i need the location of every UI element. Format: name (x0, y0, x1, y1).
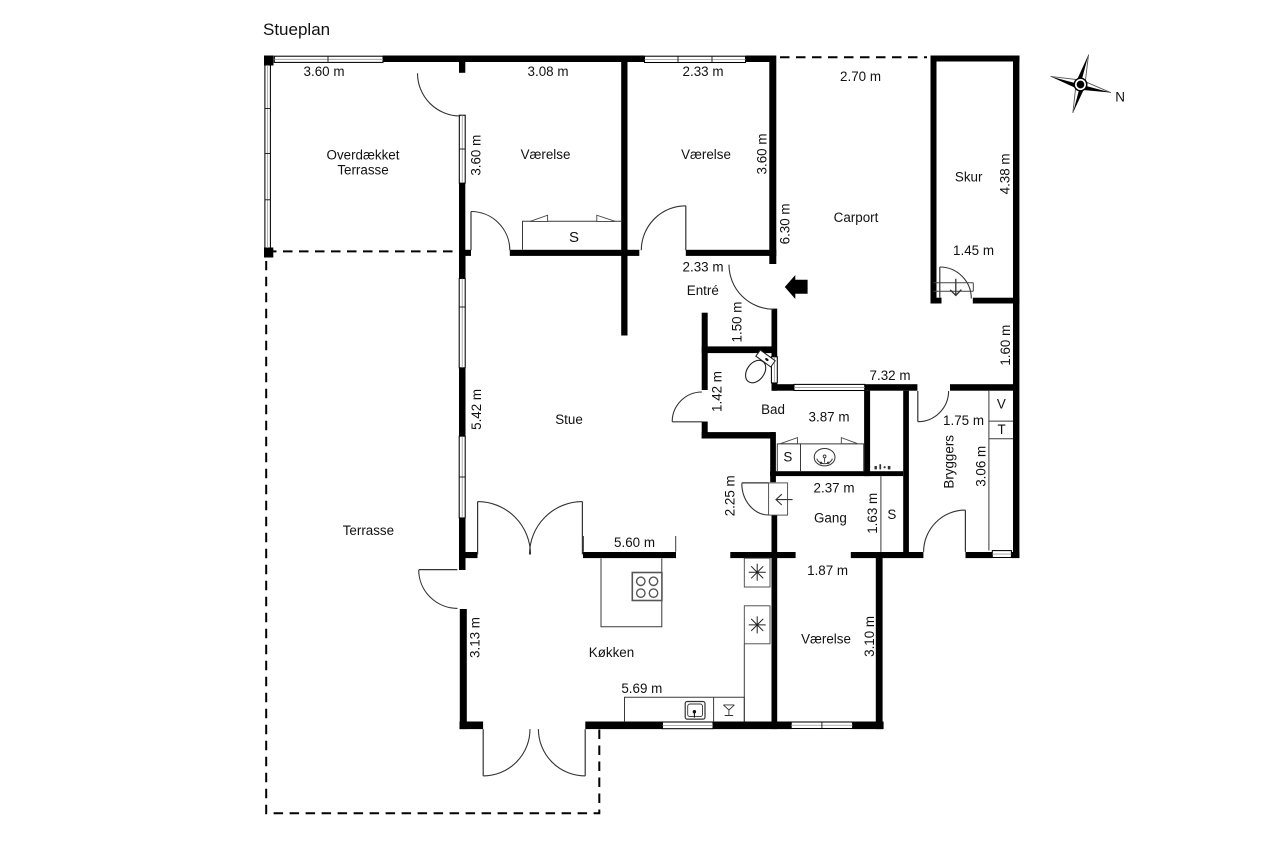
svg-text:S: S (887, 507, 896, 522)
svg-text:3.60 m: 3.60 m (469, 135, 484, 176)
svg-text:3.60 m: 3.60 m (304, 64, 345, 79)
svg-text:T: T (998, 422, 1006, 437)
svg-text:Bryggers: Bryggers (942, 435, 957, 489)
svg-text:Værelse: Værelse (681, 147, 731, 162)
svg-text:1.87 m: 1.87 m (807, 563, 848, 578)
svg-text:3.10 m: 3.10 m (862, 616, 877, 657)
svg-text:Terrasse: Terrasse (343, 523, 394, 538)
svg-text:1.75 m: 1.75 m (943, 413, 984, 428)
svg-text:4.38 m: 4.38 m (998, 153, 1013, 194)
svg-text:5.42 m: 5.42 m (469, 389, 484, 430)
svg-text:Gang: Gang (814, 511, 847, 526)
svg-text:3.08 m: 3.08 m (528, 64, 569, 79)
svg-text:Carport: Carport (834, 210, 879, 225)
svg-text:6.30 m: 6.30 m (778, 203, 793, 244)
svg-text:1.60 m: 1.60 m (998, 325, 1013, 366)
svg-text:2.70 m: 2.70 m (840, 69, 881, 84)
svg-text:2.37 m: 2.37 m (814, 480, 855, 495)
svg-text:2.33 m: 2.33 m (683, 260, 724, 275)
svg-text:Stue: Stue (555, 412, 583, 427)
svg-text:1.63 m: 1.63 m (865, 493, 880, 534)
svg-text:1.50 m: 1.50 m (730, 302, 745, 343)
svg-text:Bad: Bad (761, 402, 785, 417)
svg-text:Værelse: Værelse (521, 147, 571, 162)
svg-text:N: N (1115, 90, 1125, 105)
svg-text:2.33 m: 2.33 m (683, 64, 724, 79)
svg-text:Stueplan: Stueplan (263, 20, 330, 39)
svg-text:7.32 m: 7.32 m (870, 368, 911, 383)
svg-text:3.60 m: 3.60 m (755, 134, 770, 175)
svg-text:1.45 m: 1.45 m (953, 243, 994, 258)
svg-text:Køkken: Køkken (589, 645, 634, 660)
svg-text:5.60 m: 5.60 m (614, 535, 655, 550)
svg-text:Terrasse: Terrasse (337, 162, 388, 177)
svg-text:Overdækket: Overdækket (327, 148, 400, 163)
svg-text:Skur: Skur (955, 169, 983, 184)
svg-text:S: S (783, 449, 792, 464)
svg-text:3.06 m: 3.06 m (974, 446, 989, 487)
svg-text:Værelse: Værelse (801, 632, 851, 647)
svg-text:1.42 m: 1.42 m (709, 371, 724, 412)
svg-text:5.69 m: 5.69 m (621, 681, 662, 696)
svg-text:Entré: Entré (687, 283, 719, 298)
svg-text:3.13 m: 3.13 m (468, 617, 483, 658)
svg-text:S: S (569, 229, 579, 246)
svg-text:3.87 m: 3.87 m (809, 409, 850, 424)
svg-text:V: V (997, 397, 1006, 412)
svg-text:2.25 m: 2.25 m (722, 475, 737, 516)
